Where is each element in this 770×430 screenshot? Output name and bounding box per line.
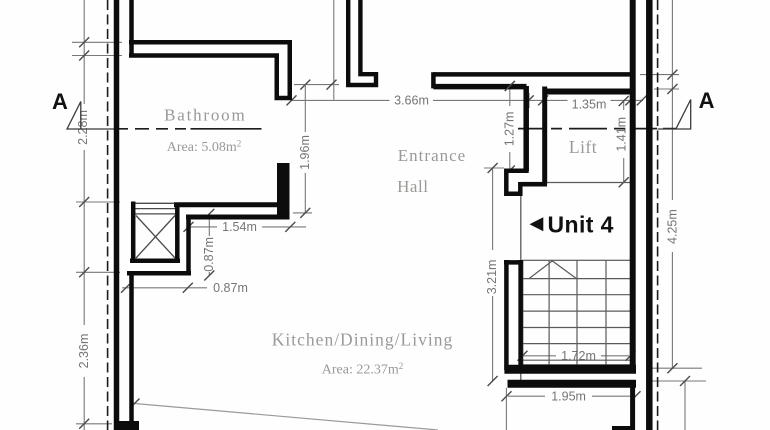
svg-text:2.36m: 2.36m: [77, 334, 91, 369]
svg-text:1.95m: 1.95m: [551, 389, 586, 403]
svg-text:Kitchen/Dining/Living: Kitchen/Dining/Living: [272, 329, 453, 349]
svg-text:1.54m: 1.54m: [222, 220, 257, 234]
svg-text:Area: 22.37m2: Area: 22.37m2: [322, 361, 403, 378]
svg-text:0.87m: 0.87m: [202, 237, 216, 272]
svg-text:Entrance: Entrance: [398, 146, 466, 165]
svg-text:1.41m: 1.41m: [615, 117, 629, 152]
svg-text:1.96m: 1.96m: [298, 135, 312, 170]
svg-text:A: A: [52, 89, 68, 114]
svg-text:Area: 5.08m2: Area: 5.08m2: [167, 138, 241, 155]
svg-text:1.27m: 1.27m: [502, 112, 516, 147]
svg-text:0.87m: 0.87m: [213, 281, 248, 295]
svg-text:Lift: Lift: [569, 137, 597, 157]
svg-text:4.25m: 4.25m: [666, 209, 680, 244]
svg-text:2.28m: 2.28m: [76, 110, 90, 145]
svg-text:Hall: Hall: [397, 177, 428, 196]
svg-text:3.66m: 3.66m: [394, 94, 429, 108]
svg-text:A: A: [699, 88, 715, 113]
svg-text:3.21m: 3.21m: [485, 260, 499, 295]
svg-text:Unit 4: Unit 4: [548, 212, 614, 238]
svg-text:1.35m: 1.35m: [572, 98, 607, 112]
svg-text:Bathroom: Bathroom: [164, 105, 246, 124]
